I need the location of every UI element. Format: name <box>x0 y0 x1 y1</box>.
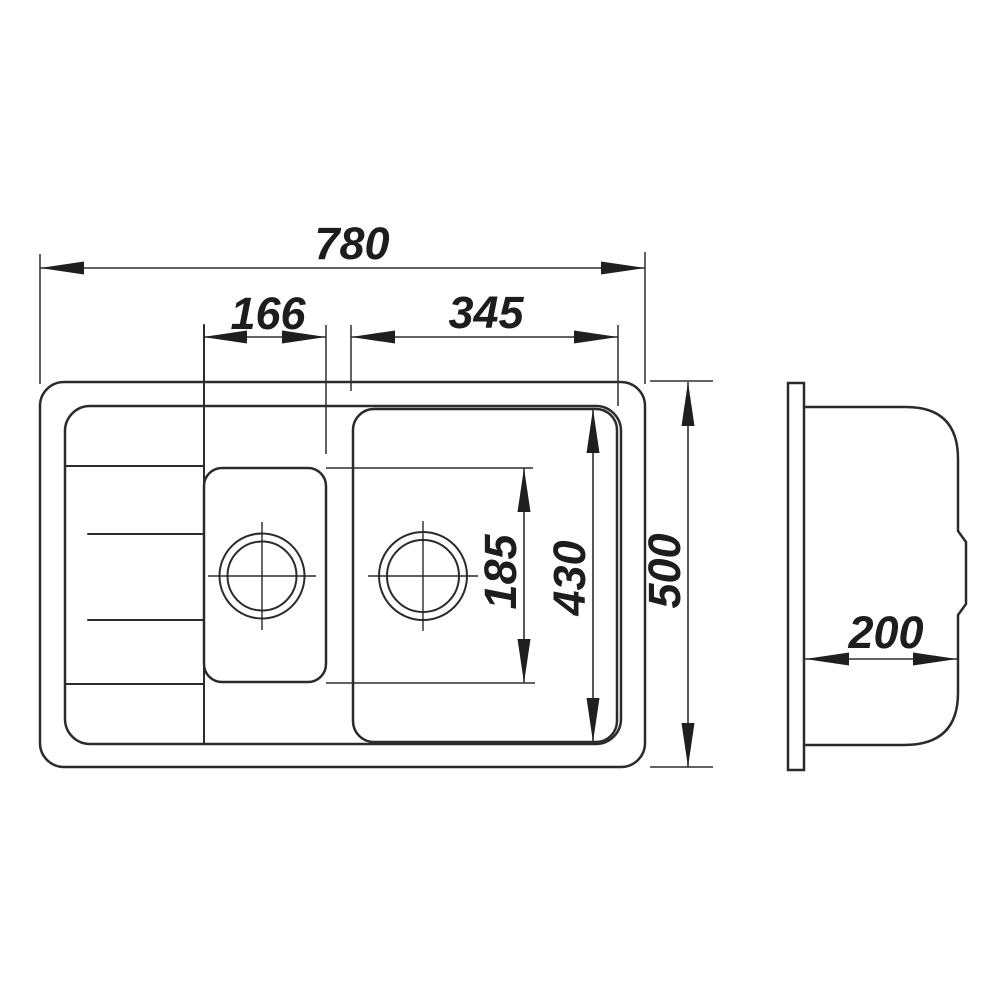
dimension-overall-depth: 500 <box>639 381 713 767</box>
dimension-small-bowl-width: 166 <box>203 288 326 454</box>
dim-185-label: 185 <box>475 533 526 609</box>
dim-166-label: 166 <box>230 288 306 339</box>
dim-185-arrow-top <box>518 468 531 512</box>
dim-780-arrow-left <box>40 262 84 275</box>
dim-200-arrow-left <box>805 653 849 666</box>
dimension-side-depth: 200 <box>805 607 957 666</box>
dimension-overall-width: 780 <box>40 218 645 384</box>
side-flange-bar <box>788 383 804 770</box>
dimension-large-bowl-span: 430 <box>544 409 600 742</box>
inner-basin-outline <box>65 406 621 744</box>
dim-780-label: 780 <box>314 218 389 269</box>
dim-500-label: 500 <box>639 533 690 608</box>
dim-345-arrow-left <box>351 331 395 344</box>
dimension-large-bowl-width: 345 <box>351 287 618 406</box>
dim-430-label: 430 <box>544 540 595 616</box>
technical-drawing-canvas: 780 166 345 185 430 <box>0 0 1000 1000</box>
dim-345-arrow-right <box>574 331 618 344</box>
dim-430-arrow-top <box>587 409 600 453</box>
dim-430-arrow-bottom <box>587 698 600 742</box>
sink-drawing-svg: 780 166 345 185 430 <box>0 0 1000 1000</box>
dim-345-label: 345 <box>448 287 524 338</box>
dim-185-arrow-bottom <box>518 639 531 683</box>
small-bowl-outline <box>204 468 326 682</box>
side-bowl-profile <box>804 407 966 745</box>
dim-500-arrow-top <box>682 382 695 426</box>
sink-side-view <box>788 383 966 770</box>
dim-780-arrow-right <box>601 262 645 275</box>
dim-500-arrow-bottom <box>682 723 695 767</box>
dim-200-label: 200 <box>847 607 923 658</box>
